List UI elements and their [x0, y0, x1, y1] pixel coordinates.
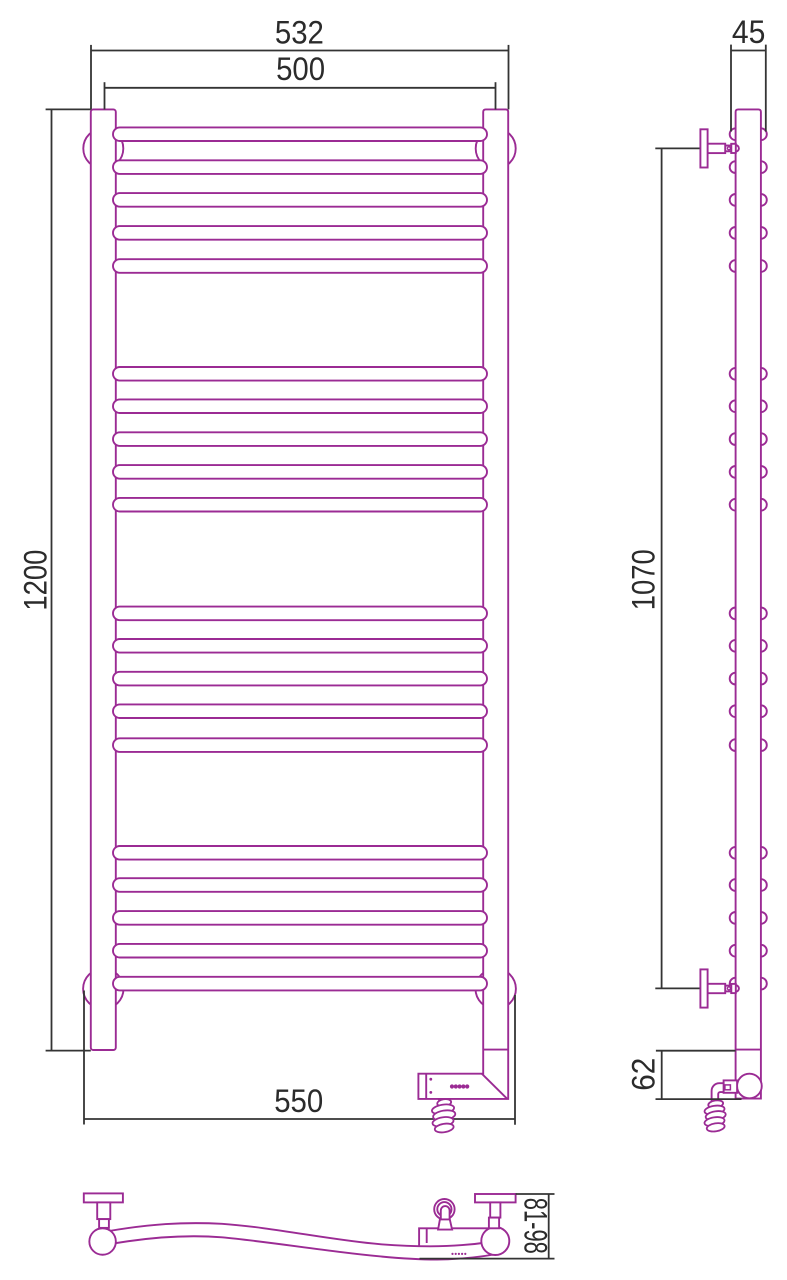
- svg-text:1070: 1070: [625, 549, 661, 610]
- svg-text:45: 45: [732, 14, 766, 50]
- svg-text:81-98: 81-98: [518, 1198, 554, 1254]
- svg-text:550: 550: [274, 1083, 323, 1119]
- svg-text:1200: 1200: [18, 550, 54, 611]
- svg-text:62: 62: [625, 1058, 661, 1091]
- svg-text:500: 500: [276, 51, 325, 87]
- svg-text:532: 532: [275, 15, 324, 51]
